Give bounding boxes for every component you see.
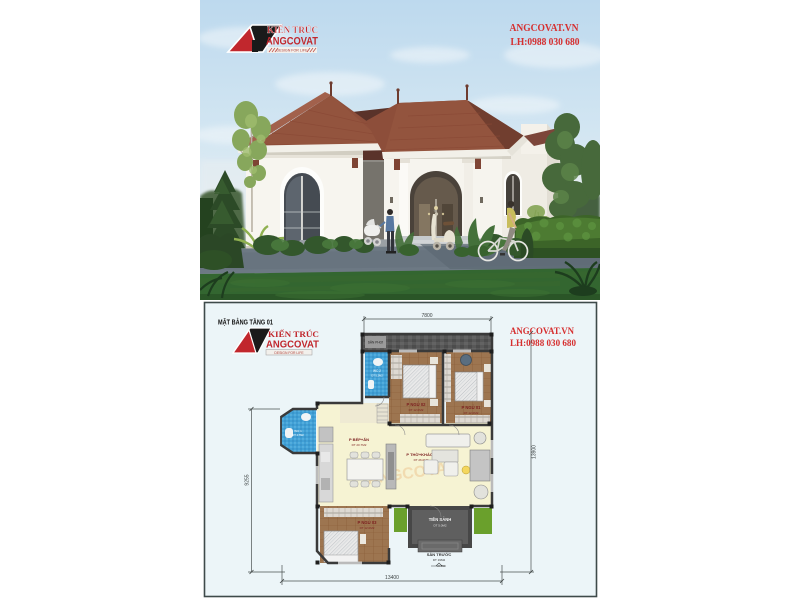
svg-text:13400: 13400 bbox=[385, 575, 399, 581]
svg-text:TIỀN SẢNH: TIỀN SẢNH bbox=[429, 517, 452, 522]
svg-text:SÂN PHƠI: SÂN PHƠI bbox=[368, 341, 384, 345]
svg-text:ANGCOVAT.VN: ANGCOVAT.VN bbox=[510, 22, 579, 34]
svg-text:P BẾP+ĂN: P BẾP+ĂN bbox=[349, 437, 369, 442]
svg-text:DT 5.0M2: DT 5.0M2 bbox=[433, 524, 446, 528]
svg-text:DT 19M2: DT 19M2 bbox=[433, 558, 446, 562]
svg-text:7800: 7800 bbox=[421, 313, 432, 319]
svg-text:DT 12.0M2: DT 12.0M2 bbox=[464, 411, 479, 415]
svg-text:+0.450: +0.450 bbox=[436, 564, 446, 568]
svg-text:DESIGN FOR LIFE: DESIGN FOR LIFE bbox=[274, 351, 304, 355]
svg-text:ANGCOVAT: ANGCOVAT bbox=[266, 339, 320, 351]
svg-text:DT 12.0M2: DT 12.0M2 bbox=[409, 408, 424, 412]
svg-text:DT 12.0M2: DT 12.0M2 bbox=[360, 526, 375, 530]
svg-text:ANGCOVAT: ANGCOVAT bbox=[266, 36, 318, 48]
svg-text:P THỜ+KHÁCH: P THỜ+KHÁCH bbox=[406, 452, 435, 457]
svg-text:DESIGN FOR LIFE: DESIGN FOR LIFE bbox=[277, 49, 309, 53]
svg-text:13900: 13900 bbox=[532, 445, 538, 459]
svg-text:KIẾN TRÚC: KIẾN TRÚC bbox=[268, 329, 319, 339]
svg-text:WC 2: WC 2 bbox=[373, 369, 381, 373]
svg-text:9255: 9255 bbox=[245, 474, 251, 485]
svg-text:P NGỦ 03: P NGỦ 03 bbox=[357, 520, 377, 525]
svg-text:DT 5.2M2: DT 5.2M2 bbox=[371, 374, 383, 378]
svg-text:P NGỦ 02: P NGỦ 02 bbox=[406, 402, 426, 407]
svg-text:SÂN TRƯỚC: SÂN TRƯỚC bbox=[427, 552, 452, 557]
svg-text:DT 4.7M2: DT 4.7M2 bbox=[292, 433, 304, 437]
svg-text:LH:0988 030 680: LH:0988 030 680 bbox=[511, 36, 580, 48]
svg-text:WC 1: WC 1 bbox=[294, 429, 302, 433]
svg-text:P NGỦ 01: P NGỦ 01 bbox=[461, 405, 481, 410]
svg-text:LH:0988 030 680: LH:0988 030 680 bbox=[510, 338, 576, 348]
svg-text:ANGCOVAT.VN: ANGCOVAT.VN bbox=[510, 326, 574, 336]
svg-text:DT 20.7M2: DT 20.7M2 bbox=[352, 443, 367, 447]
